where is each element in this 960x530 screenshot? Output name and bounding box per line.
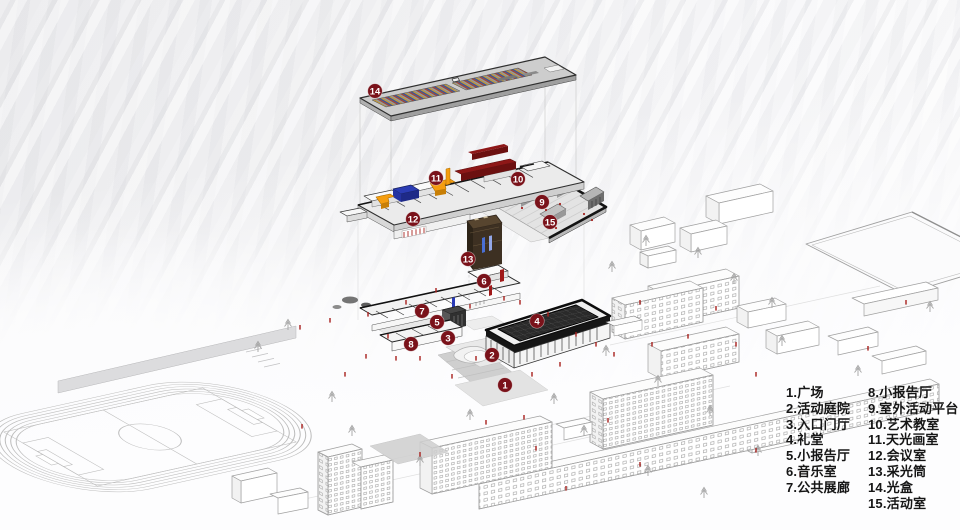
- number-marker: 13: [461, 252, 476, 267]
- legend-item: 5.小报告厅: [786, 448, 853, 464]
- walled-courtyard: [806, 212, 960, 374]
- legend-item: 7.公共展廊: [786, 480, 853, 496]
- legend-item: 2.活动庭院: [786, 401, 853, 417]
- running-track: [0, 369, 351, 504]
- svg-text:13: 13: [463, 254, 474, 265]
- legend-item: 15.活动室: [868, 496, 958, 512]
- legend-column-2: 8.小报告厅9.室外活动平台10.艺术教室11.天光画室12.会议室13.采光筒…: [868, 385, 958, 511]
- legend-item: 9.室外活动平台: [868, 401, 958, 417]
- svg-text:12: 12: [408, 214, 419, 225]
- svg-text:14: 14: [370, 86, 381, 97]
- legend-item: 4.礼堂: [786, 432, 853, 448]
- number-marker: 8: [404, 337, 419, 352]
- legend-item: 3.入口门厅: [786, 417, 853, 433]
- deck-dot: [545, 209, 547, 211]
- deck-dot: [583, 213, 585, 215]
- goal-box: [36, 455, 58, 466]
- goal-box: [242, 409, 264, 420]
- tree-icon: [551, 394, 558, 405]
- legend-item: 10.艺术教室: [868, 417, 958, 433]
- tree-icon: [855, 366, 862, 377]
- number-marker: 10: [511, 172, 526, 187]
- number-marker: 1: [498, 378, 513, 393]
- svg-text:4: 4: [534, 316, 540, 327]
- number-marker: 5: [430, 315, 445, 330]
- tree-icon: [329, 392, 336, 403]
- legend-column-1: 1.广场2.活动庭院3.入口门厅4.礼堂5.小报告厅6.音乐室7.公共展廊: [786, 385, 853, 511]
- number-marker: 12: [406, 212, 421, 227]
- legend-item: 1.广场: [786, 385, 853, 401]
- svg-text:2: 2: [489, 350, 494, 361]
- number-marker: 6: [477, 274, 492, 289]
- legend: 1.广场2.活动庭院3.入口门厅4.礼堂5.小报告厅6.音乐室7.公共展廊 8.…: [786, 385, 958, 511]
- tree-icon: [349, 426, 356, 437]
- tree-icon: [927, 302, 934, 313]
- number-marker: 7: [415, 304, 430, 319]
- tree-icon: [701, 488, 708, 499]
- number-marker: 9: [535, 195, 550, 210]
- svg-text:15: 15: [545, 217, 556, 228]
- svg-text:8: 8: [408, 339, 413, 350]
- legend-item: 8.小报告厅: [868, 385, 958, 401]
- svg-text:3: 3: [445, 333, 450, 344]
- number-marker: 3: [441, 331, 456, 346]
- number-marker: 11: [429, 171, 444, 186]
- tree-icon: [609, 262, 616, 273]
- legend-item: 11.天光画室: [868, 432, 958, 448]
- legend-item: 6.音乐室: [786, 464, 853, 480]
- svg-text:11: 11: [431, 173, 442, 184]
- svg-text:5: 5: [434, 317, 440, 328]
- upper-floor-layer: [340, 144, 606, 270]
- svg-text:6: 6: [481, 276, 486, 287]
- site-axonometric-diagram: 123456789101112131415 1.广场2.活动庭院3.入口门厅4.…: [0, 0, 960, 530]
- deck-dot: [521, 207, 523, 209]
- roof-layer: [360, 57, 576, 121]
- deck-dot: [559, 203, 561, 205]
- svg-text:7: 7: [419, 306, 424, 317]
- number-marker: 14: [368, 84, 383, 99]
- tree-icon: [467, 410, 474, 421]
- residential-slab: [590, 269, 739, 449]
- svg-text:1: 1: [502, 380, 508, 391]
- legend-item: 14.光盒: [868, 480, 958, 496]
- number-marker: 4: [530, 314, 545, 329]
- deck-dot: [591, 219, 593, 221]
- legend-item: 12.会议室: [868, 448, 958, 464]
- svg-text:9: 9: [539, 197, 544, 208]
- number-marker: 2: [485, 348, 500, 363]
- legend-item: 13.采光筒: [868, 464, 958, 480]
- context-box: [630, 184, 773, 268]
- tree-icon: [603, 346, 610, 357]
- boundary-wall: [58, 326, 296, 393]
- svg-text:10: 10: [513, 174, 524, 185]
- number-marker: 15: [543, 215, 558, 230]
